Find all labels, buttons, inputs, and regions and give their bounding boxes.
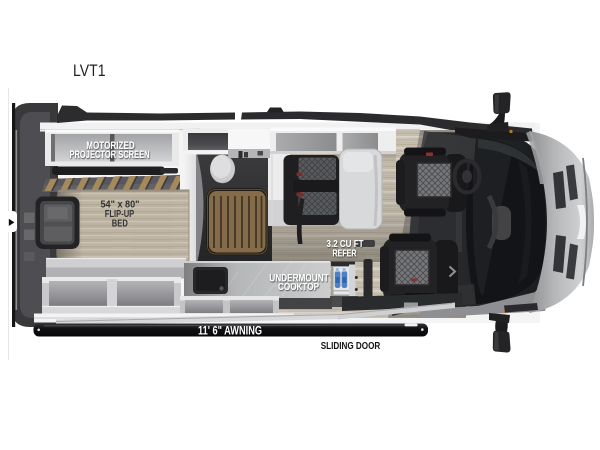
svg-text:BED: BED <box>112 219 128 230</box>
svg-text:PROJECTOR SCREEN: PROJECTOR SCREEN <box>70 149 150 161</box>
svg-text:SLIDING DOOR: SLIDING DOOR <box>321 341 381 352</box>
svg-text:11' 6" AWNING: 11' 6" AWNING <box>198 324 262 338</box>
svg-text:LVT1: LVT1 <box>73 61 106 80</box>
svg-text:REFER: REFER <box>333 249 357 260</box>
svg-text:COOKTOP: COOKTOP <box>278 281 319 293</box>
